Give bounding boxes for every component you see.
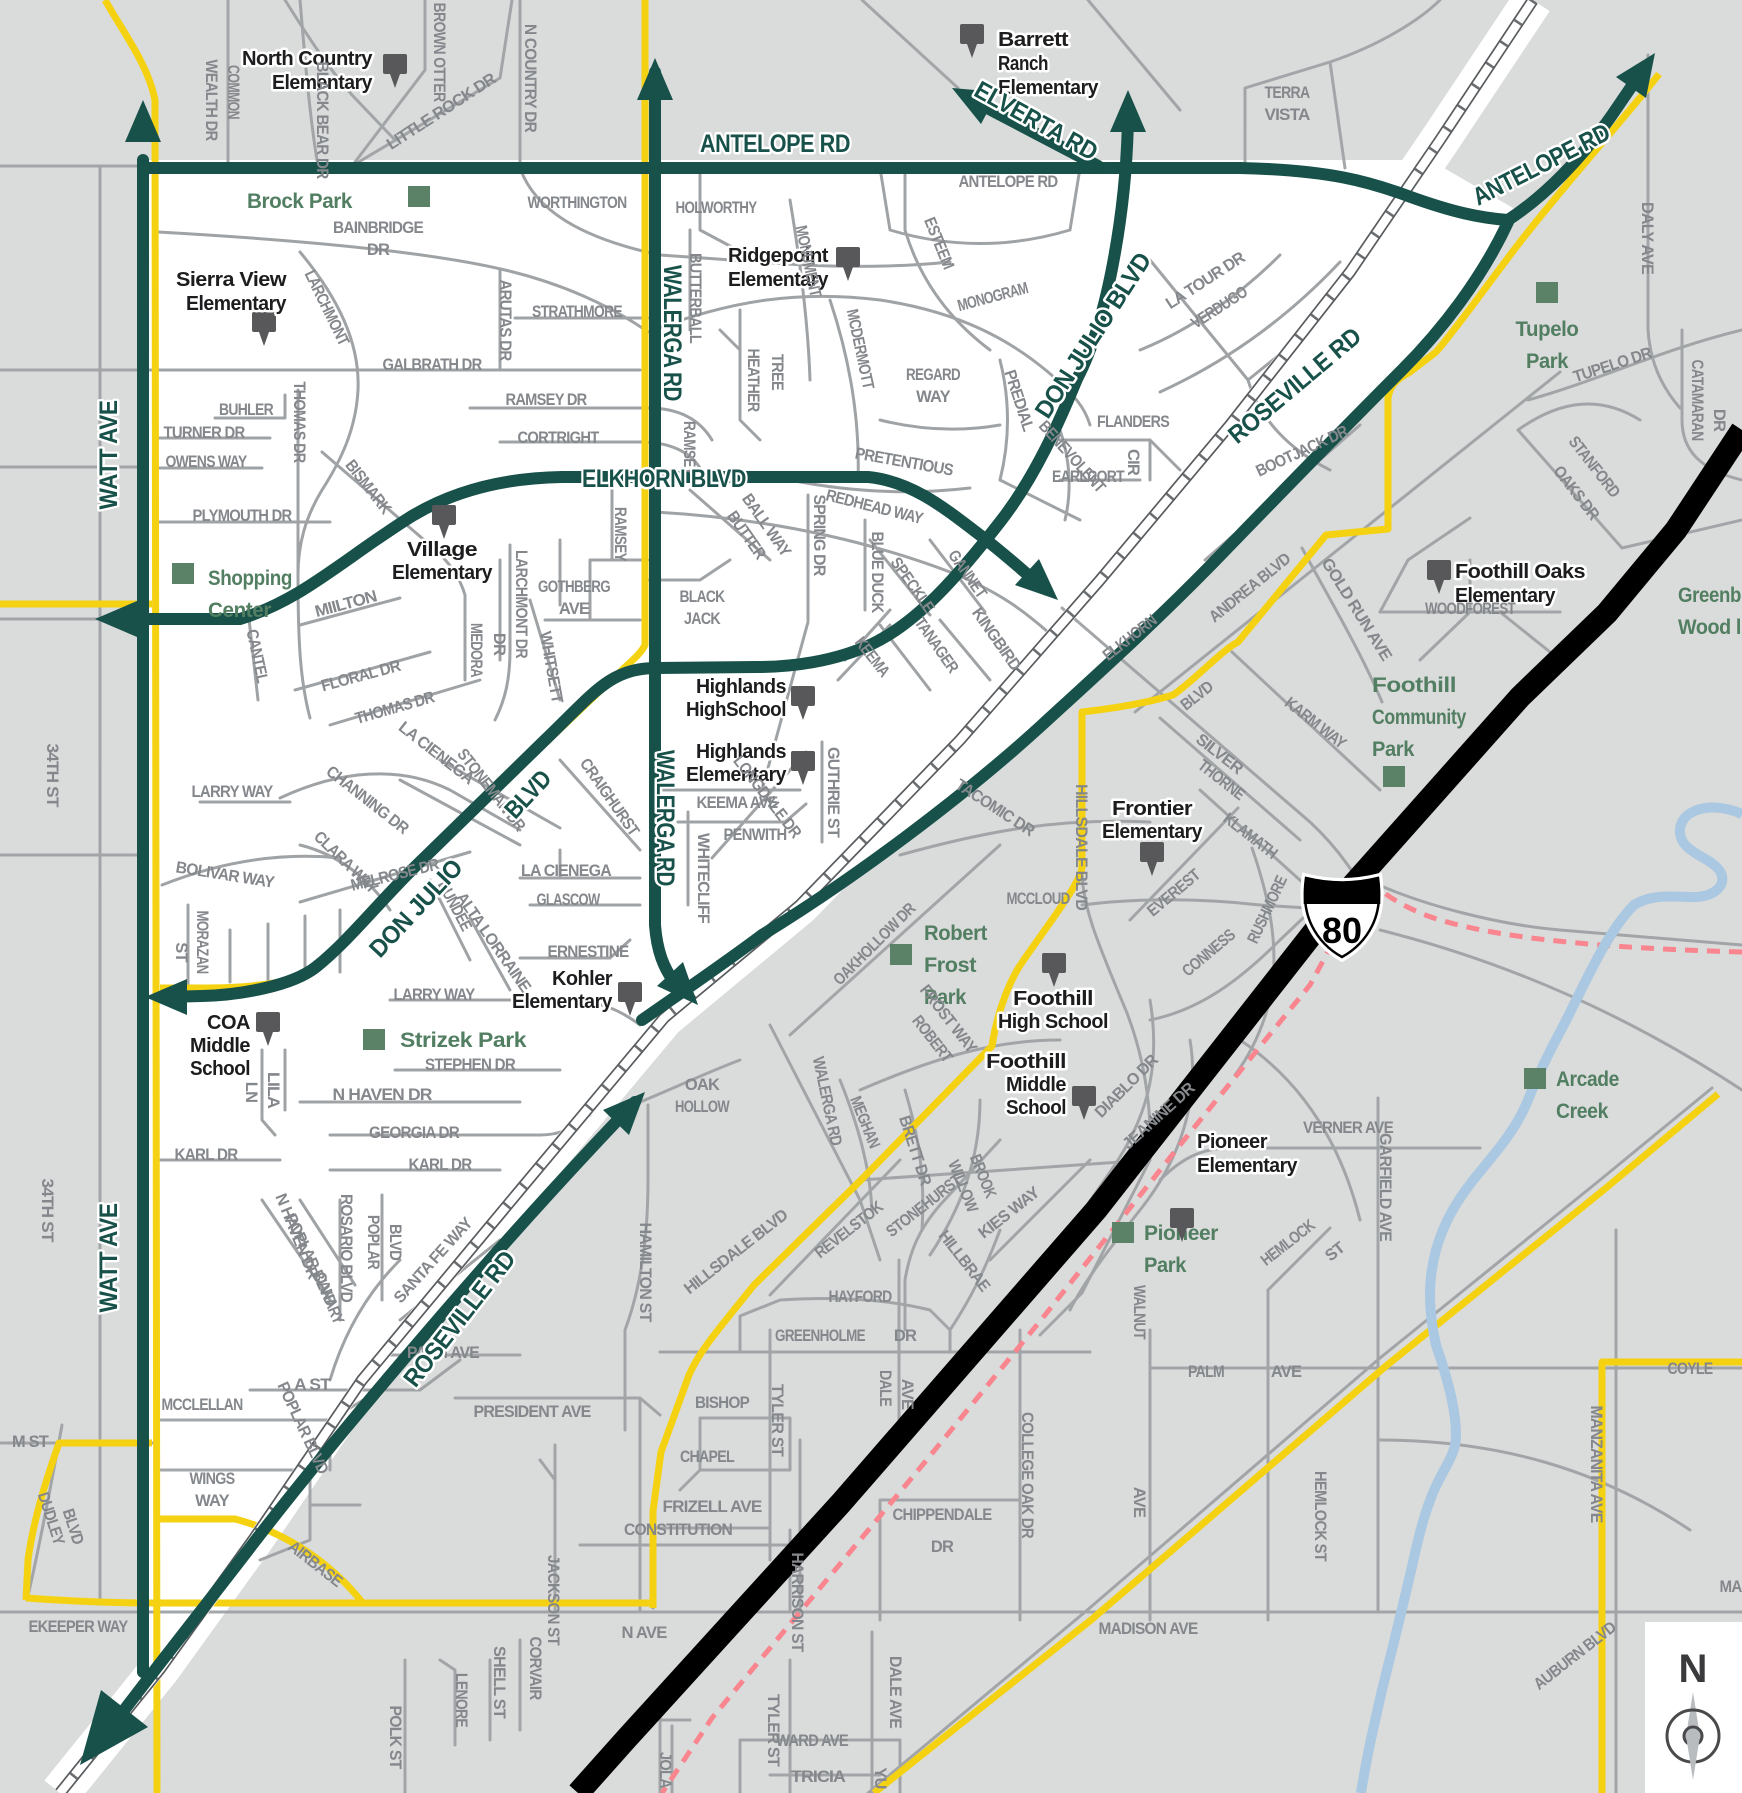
svg-text:North Country: North Country	[242, 48, 373, 70]
svg-text:Tupelo: Tupelo	[1516, 318, 1579, 341]
svg-text:OAK: OAK	[685, 1076, 720, 1094]
svg-text:Pioneer: Pioneer	[1197, 1131, 1268, 1153]
svg-text:KARL DR: KARL DR	[175, 1146, 239, 1164]
svg-text:ANTELOPE RD: ANTELOPE RD	[959, 173, 1059, 191]
svg-text:WINGS: WINGS	[190, 1470, 236, 1488]
svg-text:Robert: Robert	[924, 922, 987, 945]
svg-text:Elementary: Elementary	[392, 562, 493, 584]
svg-text:ELKHORN BLVD: ELKHORN BLVD	[582, 465, 746, 493]
svg-text:80: 80	[1322, 910, 1362, 951]
svg-text:MCCLELLAN: MCCLELLAN	[162, 1396, 243, 1414]
svg-text:ROSARIO BLVD: ROSARIO BLVD	[337, 1194, 355, 1303]
svg-text:BLACK: BLACK	[680, 588, 726, 606]
svg-text:CORTRIGHT: CORTRIGHT	[518, 429, 600, 447]
svg-text:Park: Park	[1526, 350, 1569, 373]
svg-text:CHIPPENDALE: CHIPPENDALE	[893, 1506, 993, 1524]
svg-text:Wood l: Wood l	[1678, 616, 1741, 639]
svg-text:HEATHER: HEATHER	[744, 349, 762, 413]
svg-text:Elementary: Elementary	[512, 991, 613, 1013]
svg-text:TURNER DR: TURNER DR	[164, 424, 246, 442]
svg-text:WATT AVE: WATT AVE	[95, 401, 123, 510]
svg-text:OWENS WAY: OWENS WAY	[166, 453, 248, 471]
svg-text:BLUE DUCK: BLUE DUCK	[868, 532, 886, 614]
svg-text:Greenb: Greenb	[1678, 584, 1741, 607]
svg-text:COA: COA	[207, 1012, 250, 1034]
svg-text:STRATHMORE: STRATHMORE	[532, 303, 623, 321]
svg-text:PLYMOUTH DR: PLYMOUTH DR	[193, 507, 293, 525]
svg-text:Park: Park	[1372, 738, 1415, 761]
svg-text:LILA: LILA	[264, 1072, 282, 1109]
svg-text:PENWITH: PENWITH	[724, 826, 787, 844]
svg-text:Community: Community	[1372, 706, 1467, 729]
svg-text:BUTTERBALL: BUTTERBALL	[686, 253, 704, 344]
svg-text:CORVAIR: CORVAIR	[526, 1637, 544, 1701]
svg-text:GUTHRIE ST: GUTHRIE ST	[824, 747, 842, 838]
svg-text:HEMLOCK ST: HEMLOCK ST	[1311, 1471, 1329, 1562]
svg-text:ERNESTINE: ERNESTINE	[548, 943, 630, 961]
svg-text:GOTHBERG: GOTHBERG	[538, 578, 610, 596]
svg-text:REGARD: REGARD	[906, 366, 961, 384]
svg-text:LENORE: LENORE	[452, 1673, 470, 1728]
svg-text:TREE: TREE	[768, 354, 786, 391]
svg-text:TRICIA: TRICIA	[791, 1768, 846, 1786]
svg-text:Frontier: Frontier	[1112, 798, 1193, 820]
svg-text:LARRY WAY: LARRY WAY	[192, 783, 274, 801]
svg-text:JACKSON ST: JACKSON ST	[544, 1555, 562, 1646]
svg-text:GARFIELD AVE: GARFIELD AVE	[1376, 1133, 1394, 1242]
svg-text:WAY: WAY	[195, 1492, 229, 1510]
svg-text:CIR: CIR	[1124, 449, 1142, 476]
svg-text:MANZANITA AVE: MANZANITA AVE	[1587, 1406, 1605, 1524]
svg-text:Foothill: Foothill	[1372, 674, 1456, 697]
svg-text:ANTELOPE RD: ANTELOPE RD	[700, 130, 850, 158]
svg-text:POPLAR: POPLAR	[364, 1215, 382, 1270]
svg-text:SPRING DR: SPRING DR	[810, 495, 828, 577]
svg-text:34TH ST: 34TH ST	[38, 1179, 56, 1243]
svg-text:HAMILTON ST: HAMILTON ST	[636, 1223, 654, 1323]
svg-text:Sierra View: Sierra View	[176, 269, 287, 291]
svg-text:THOMAS DR: THOMAS DR	[290, 382, 308, 464]
svg-text:Kohler: Kohler	[552, 968, 613, 990]
svg-text:HOLLOW: HOLLOW	[675, 1098, 730, 1116]
svg-text:HOLWORTHY: HOLWORTHY	[676, 199, 758, 217]
svg-text:Ranch: Ranch	[998, 53, 1048, 75]
svg-text:GLASCOW: GLASCOW	[537, 891, 601, 909]
svg-text:KARL DR: KARL DR	[409, 1156, 473, 1174]
svg-text:RAMSEY DR: RAMSEY DR	[506, 391, 588, 409]
svg-text:M ST: M ST	[12, 1433, 49, 1451]
svg-text:YU: YU	[871, 1767, 889, 1788]
svg-text:FRIZELL AVE: FRIZELL AVE	[663, 1498, 763, 1516]
svg-text:WHITECLIFF: WHITECLIFF	[694, 833, 712, 924]
svg-text:BLVD: BLVD	[386, 1224, 404, 1261]
svg-text:N: N	[1679, 1647, 1708, 1691]
svg-text:Elementary: Elementary	[1102, 821, 1203, 843]
svg-text:WOODFOREST: WOODFOREST	[1425, 600, 1516, 618]
svg-text:Highlands: Highlands	[696, 676, 786, 698]
svg-text:DALE AVE: DALE AVE	[886, 1656, 904, 1729]
svg-text:DR: DR	[367, 241, 390, 259]
svg-text:School: School	[1006, 1097, 1066, 1119]
svg-text:WALNUT: WALNUT	[1130, 1285, 1148, 1340]
svg-text:COLLEGE OAK DR: COLLEGE OAK DR	[1018, 1412, 1036, 1539]
svg-text:DR: DR	[931, 1538, 954, 1556]
svg-text:RAMSEY: RAMSEY	[611, 507, 629, 562]
svg-text:MADIS: MADIS	[1720, 1578, 1742, 1596]
svg-text:HighSchool: HighSchool	[686, 699, 786, 721]
svg-text:POLK ST: POLK ST	[386, 1706, 404, 1770]
svg-text:HILLSDALE BLVD: HILLSDALE BLVD	[1072, 784, 1090, 911]
svg-text:GREENHOLME: GREENHOLME	[775, 1327, 866, 1345]
svg-text:Foothill: Foothill	[1013, 988, 1093, 1010]
svg-text:ST: ST	[172, 942, 190, 962]
svg-text:Elementary: Elementary	[1197, 1155, 1298, 1177]
svg-text:High School: High School	[998, 1011, 1108, 1033]
svg-text:WEALTH DR: WEALTH DR	[202, 60, 220, 142]
svg-text:TERRA: TERRA	[1265, 84, 1311, 102]
svg-text:N HAVEN DR: N HAVEN DR	[333, 1086, 433, 1104]
svg-text:Frost: Frost	[924, 954, 976, 977]
svg-text:Village: Village	[407, 539, 477, 561]
svg-text:AVE: AVE	[1271, 1363, 1302, 1381]
svg-text:CATAMARAN: CATAMARAN	[1688, 360, 1706, 441]
svg-text:WALERGA RD: WALERGA RD	[651, 750, 679, 886]
svg-text:WAY: WAY	[916, 388, 950, 406]
svg-text:CHAPEL: CHAPEL	[680, 1448, 735, 1466]
svg-text:BISHOP: BISHOP	[695, 1394, 750, 1412]
svg-text:JACK: JACK	[684, 610, 721, 628]
svg-text:Shopping: Shopping	[208, 567, 292, 590]
svg-text:Middle: Middle	[1006, 1074, 1066, 1096]
svg-text:BAINBRIDGE: BAINBRIDGE	[333, 219, 424, 237]
svg-text:CONSTITUTION: CONSTITUTION	[624, 1521, 732, 1539]
svg-text:Foothill: Foothill	[986, 1051, 1066, 1073]
svg-text:DR: DR	[490, 633, 508, 656]
svg-text:WALERGA RD: WALERGA RD	[658, 265, 686, 401]
svg-text:N AVE: N AVE	[622, 1624, 668, 1642]
svg-text:BLACK BEAR DR: BLACK BEAR DR	[313, 62, 331, 180]
svg-text:A ST: A ST	[294, 1376, 331, 1394]
svg-text:DR: DR	[1710, 409, 1728, 432]
svg-text:MORAZAN: MORAZAN	[193, 911, 211, 974]
svg-text:WARD AVE: WARD AVE	[776, 1732, 849, 1750]
svg-text:MCCLOUD: MCCLOUD	[1007, 890, 1071, 908]
svg-text:WATT AVE: WATT AVE	[95, 1204, 123, 1313]
svg-text:EKEEPER WAY: EKEEPER WAY	[29, 1618, 129, 1636]
svg-text:LA CIENEGA: LA CIENEGA	[521, 862, 612, 880]
svg-text:WORTHINGTON: WORTHINGTON	[528, 194, 627, 212]
svg-text:STEPHEN DR: STEPHEN DR	[425, 1056, 516, 1074]
svg-text:AVE: AVE	[898, 1379, 916, 1410]
svg-text:GEORGIA DR: GEORGIA DR	[369, 1124, 460, 1142]
svg-text:Park: Park	[1144, 1254, 1187, 1277]
svg-text:Center: Center	[208, 599, 271, 622]
svg-text:ARUTAS DR: ARUTAS DR	[496, 280, 514, 362]
svg-text:BROWN OTTER: BROWN OTTER	[430, 3, 448, 103]
svg-text:COMMON: COMMON	[224, 65, 242, 119]
svg-text:N COUNTRY DR: N COUNTRY DR	[521, 24, 539, 133]
svg-text:GALBRATH DR: GALBRATH DR	[383, 356, 483, 374]
svg-text:TYLER ST: TYLER ST	[768, 1384, 786, 1457]
svg-text:Creek: Creek	[1556, 1100, 1609, 1123]
svg-text:LARRY WAY: LARRY WAY	[394, 986, 476, 1004]
svg-text:AVE: AVE	[1130, 1487, 1148, 1518]
svg-text:VISTA: VISTA	[1265, 106, 1311, 124]
svg-text:TYLER ST: TYLER ST	[764, 1694, 782, 1767]
svg-text:MEDORA: MEDORA	[467, 623, 485, 678]
svg-text:PALM: PALM	[1188, 1363, 1224, 1381]
svg-text:HAYFORD: HAYFORD	[829, 1288, 893, 1306]
svg-text:HARRISON ST: HARRISON ST	[788, 1553, 806, 1653]
svg-text:34TH ST: 34TH ST	[43, 744, 61, 808]
svg-text:DALY AVE: DALY AVE	[1638, 202, 1656, 275]
svg-text:School: School	[190, 1058, 250, 1080]
svg-text:LARCHMONT DR: LARCHMONT DR	[512, 550, 530, 659]
svg-text:Middle: Middle	[190, 1035, 250, 1057]
svg-text:Elementary: Elementary	[186, 293, 287, 315]
svg-text:AVE: AVE	[559, 600, 590, 618]
svg-text:EARLCORT: EARLCORT	[1052, 468, 1125, 486]
svg-text:DALE: DALE	[876, 1370, 894, 1407]
svg-text:JOLA: JOLA	[656, 1752, 674, 1789]
svg-text:PRESIDENT AVE: PRESIDENT AVE	[474, 1403, 592, 1421]
svg-text:DR: DR	[894, 1327, 917, 1345]
svg-text:Foothill Oaks: Foothill Oaks	[1455, 561, 1585, 583]
svg-text:COYLE: COYLE	[1668, 1360, 1714, 1378]
svg-text:BUHLER: BUHLER	[219, 401, 274, 419]
svg-text:SHELL ST: SHELL ST	[490, 1646, 508, 1719]
svg-text:Strizek Park: Strizek Park	[400, 1029, 527, 1052]
svg-text:Barrett: Barrett	[998, 29, 1069, 51]
svg-text:MADISON AVE: MADISON AVE	[1099, 1620, 1199, 1638]
svg-text:FLANDERS: FLANDERS	[1097, 413, 1170, 431]
svg-text:Arcade: Arcade	[1556, 1068, 1619, 1091]
svg-text:LN: LN	[242, 1082, 260, 1102]
svg-text:Brock Park: Brock Park	[247, 190, 353, 213]
svg-text:VERNER AVE: VERNER AVE	[1303, 1119, 1394, 1137]
